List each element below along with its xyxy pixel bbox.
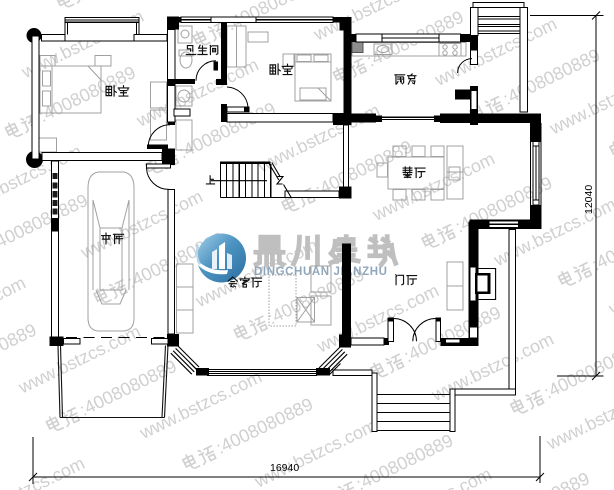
svg-text:DINGCHUAN JIANZHU: DINGCHUAN JIANZHU — [254, 266, 388, 278]
svg-text:16940: 16940 — [270, 462, 299, 474]
svg-text:12040: 12040 — [583, 185, 595, 214]
